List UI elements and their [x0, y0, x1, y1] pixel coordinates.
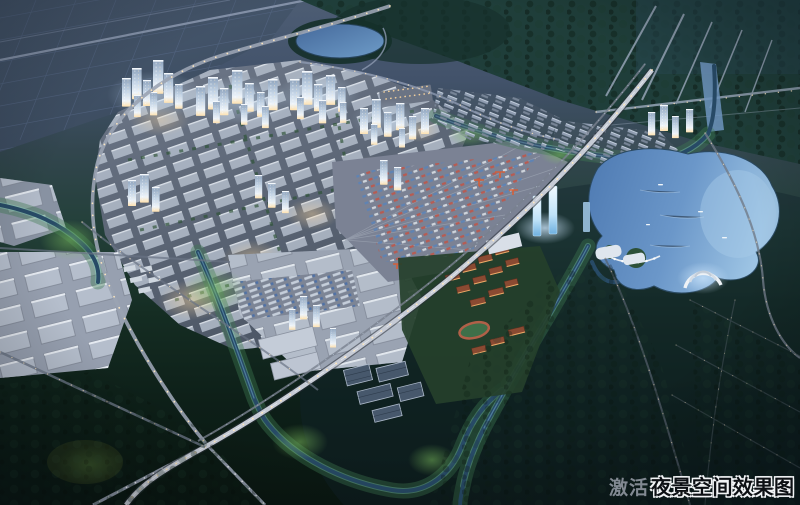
- scene-svg: [0, 0, 800, 505]
- vignette: [0, 0, 800, 505]
- night-aerial-rendering: 激活 夜景空间效果图: [0, 0, 800, 505]
